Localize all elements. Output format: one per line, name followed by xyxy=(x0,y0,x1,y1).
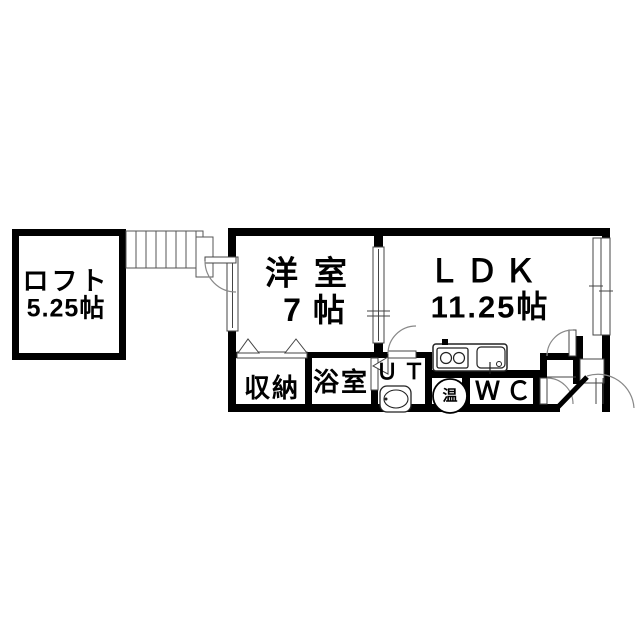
loft-label: ロフト xyxy=(22,268,109,294)
ldk-hall-door xyxy=(547,330,576,356)
ldk-area-label: 11.25帖 xyxy=(431,292,550,323)
bath-label: 浴室 xyxy=(313,369,369,395)
western-room-door-opening xyxy=(227,257,238,331)
stove-burners xyxy=(437,348,468,368)
closet-bifold-doors xyxy=(237,339,307,358)
floorplan-page: ロフト 5.25帖 洋室 7帖 ＬＤＫ 11.25帖 収納 浴室 ＵＴ 温 ＷＣ xyxy=(0,0,640,640)
ldk-window xyxy=(589,238,613,335)
utility-label: ＵＴ xyxy=(376,361,430,383)
storage-label: 収納 xyxy=(244,375,300,401)
stairs xyxy=(126,231,203,268)
western-room-area-label: 7帖 xyxy=(283,294,357,326)
kitchen-tap-mark xyxy=(442,339,448,345)
utility-sink xyxy=(380,386,411,412)
wc-label: ＷＣ xyxy=(475,380,537,405)
utility-door xyxy=(388,326,416,358)
kitchen-counter xyxy=(433,339,507,374)
loft-area-label: 5.25帖 xyxy=(27,297,106,322)
entrance xyxy=(547,359,634,412)
water-heater-label: 温 xyxy=(442,389,457,404)
ldk-label: ＬＤＫ xyxy=(428,255,542,287)
western-room-label: 洋室 xyxy=(265,257,363,290)
sliding-door-partition xyxy=(367,247,390,343)
